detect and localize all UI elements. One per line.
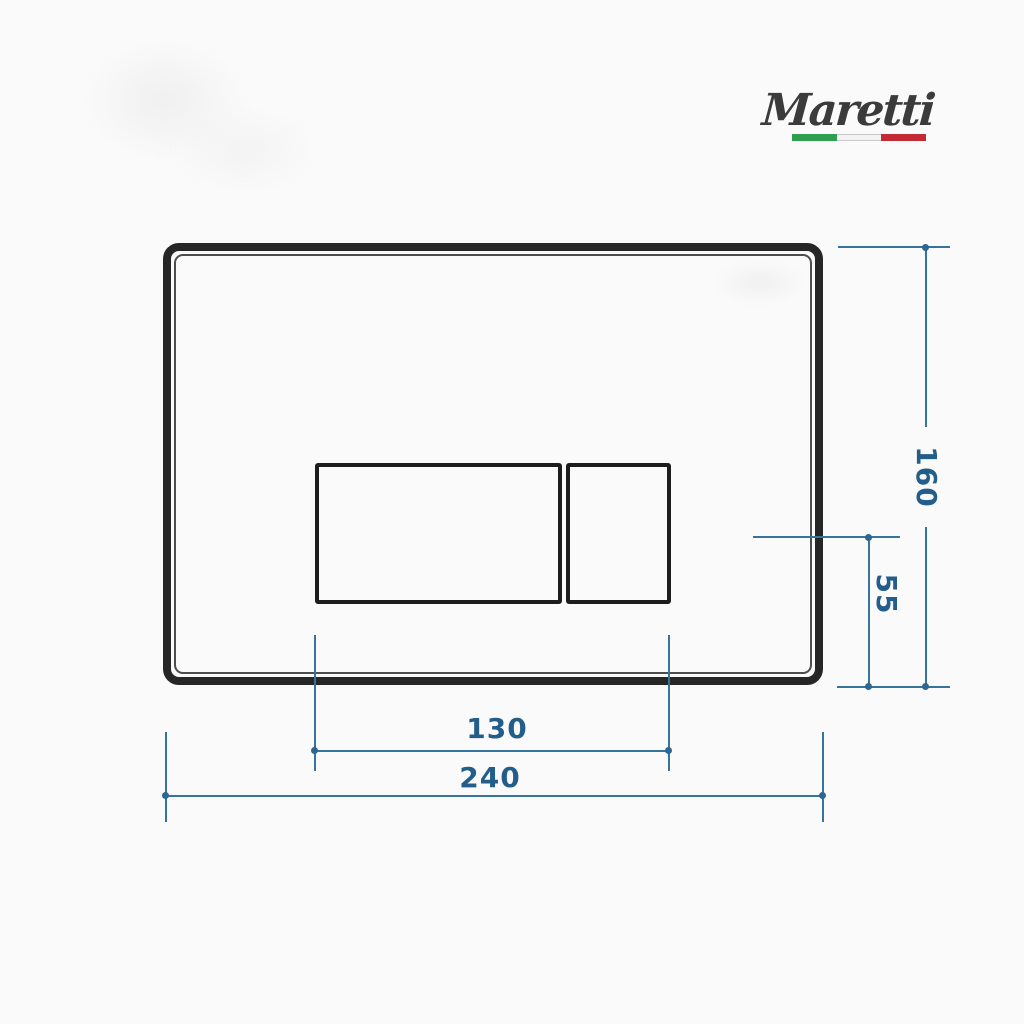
flag-red-segment xyxy=(881,134,926,141)
dimension-dot xyxy=(922,244,929,251)
dimension-dot xyxy=(665,747,672,754)
watermark-smudge xyxy=(140,85,350,215)
dimension-label-plate-width: 240 xyxy=(440,761,540,795)
extension-line-plate-top xyxy=(838,246,950,248)
dimension-dot xyxy=(311,747,318,754)
brand-name: Maretti xyxy=(754,88,941,134)
extension-line-plate-left xyxy=(165,732,167,822)
technical-drawing-canvas: Maretti 160 55 130 240 xyxy=(0,0,1024,1024)
extension-line-plate-bottom xyxy=(837,686,950,688)
dimension-label-plate-height: 160 xyxy=(909,427,943,527)
dimension-label-button-offset: 55 xyxy=(873,554,903,634)
italian-flag-stripe xyxy=(792,134,926,141)
dimension-label-buttons-width: 130 xyxy=(447,712,547,746)
extension-line-button-centerline xyxy=(753,536,900,538)
dimension-line-240 xyxy=(166,795,824,797)
small-flush-button-outline xyxy=(566,463,671,604)
flag-green-segment xyxy=(792,134,837,141)
dimension-dot xyxy=(922,683,929,690)
watermark-smudge xyxy=(50,15,280,185)
dimension-dot xyxy=(819,792,826,799)
dimension-dot xyxy=(865,683,872,690)
extension-line-plate-right xyxy=(822,732,824,822)
dimension-line-130 xyxy=(315,750,670,752)
dimension-dot xyxy=(162,792,169,799)
brand-logo: Maretti xyxy=(756,88,940,134)
dimension-dot xyxy=(865,534,872,541)
flag-white-segment xyxy=(837,134,882,141)
large-flush-button-outline xyxy=(315,463,562,604)
